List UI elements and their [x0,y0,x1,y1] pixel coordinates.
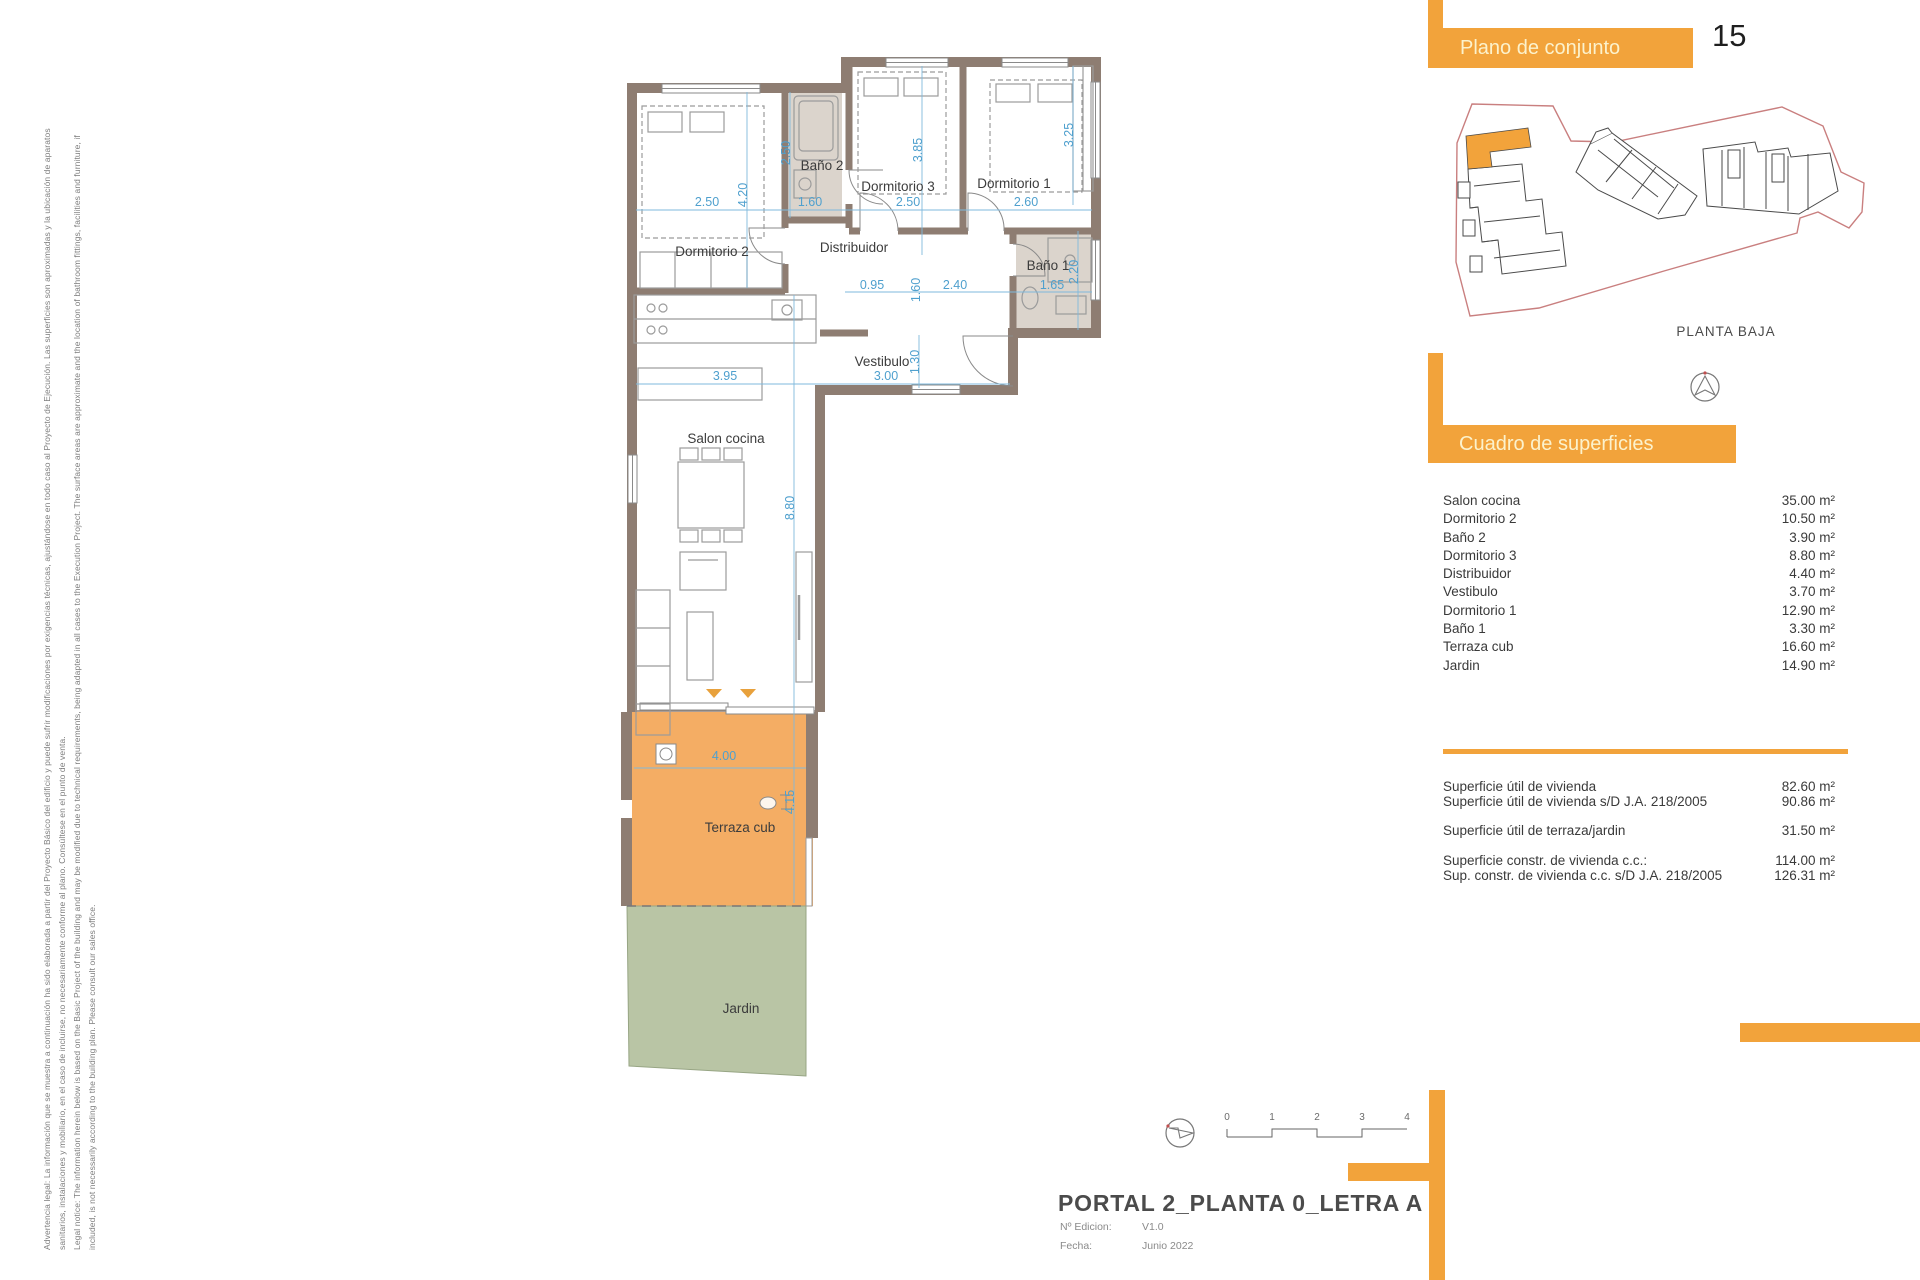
legal-line-4: included, is not necessarily according t… [87,904,97,1250]
date-label: Fecha: [1060,1240,1092,1252]
row-label: Jardin [1443,657,1480,675]
dim-terrace-h: 4.15 [783,790,797,814]
row-label: Distribuidor [1443,565,1511,583]
row-value: 14.90 m² [1782,657,1835,675]
row-value: 4.40 m² [1789,565,1835,583]
total-value: 126.31 m² [1774,869,1835,884]
scale-tick-1: 1 [1269,1112,1275,1123]
row-value: 3.70 m² [1789,583,1835,601]
table-row: Dormitorio 210.50 m² [1443,510,1835,528]
total-label: Superficie útil de vivienda [1443,780,1596,795]
row-value: 10.50 m² [1782,510,1835,528]
row-label: Dormitorio 1 [1443,602,1517,620]
total-label: Superficie útil de terraza/jardin [1443,824,1625,839]
label-dorm3: Dormitorio 3 [861,179,935,194]
total-label: Sup. constr. de vivienda c.c. s/D J.A. 2… [1443,869,1722,884]
dim-bath2-w: 1.60 [798,195,822,209]
scale-bar: 0 1 2 3 4 [1150,1100,1440,1160]
total-row: Superficie constr. de vivienda c.c.:114.… [1443,854,1835,869]
site-buildings-left [1458,164,1566,274]
dim-dorm2-w: 2.50 [695,195,719,209]
edition-label: Nº Edicion: [1060,1221,1112,1233]
scale-tick-3: 3 [1359,1112,1365,1123]
dim-vest-w: 3.00 [874,369,898,383]
dim-hall-a: 0.95 [860,278,884,292]
table-row: Salon cocina35.00 m² [1443,492,1835,510]
compass-icon [1166,1119,1194,1147]
legal-line-1: Advertencia legal: La información que se… [42,128,52,1250]
row-value: 3.30 m² [1789,620,1835,638]
row-label: Dormitorio 2 [1443,510,1517,528]
table-row: Baño 13.30 m² [1443,620,1835,638]
dim-hall-b: 2.40 [943,278,967,292]
label-salon: Salon cocina [687,431,765,446]
total-row: Sup. constr. de vivienda c.c. s/D J.A. 2… [1443,869,1835,884]
floor-plan: 2.50 4.20 2.50 1.60 3.85 2.50 3.25 2.60 … [560,30,1130,1105]
highlighted-unit [1466,128,1531,169]
total-value: 114.00 m² [1775,854,1835,869]
label-dorm2: Dormitorio 2 [675,244,749,259]
orange-bar-right [1740,1023,1920,1042]
table-row: Distribuidor4.40 m² [1443,565,1835,583]
total-row: Superficie útil de vivienda82.60 m² [1443,780,1835,795]
legal-line-3: Legal notice: The information herein bel… [72,135,82,1250]
label-distribuidor: Distribuidor [820,240,889,255]
table-row: Dormitorio 112.90 m² [1443,602,1835,620]
row-label: Salon cocina [1443,492,1520,510]
total-row: Superficie útil de vivienda s/D J.A. 218… [1443,795,1835,810]
table-row: Terraza cub16.60 m² [1443,638,1835,656]
dim-salon-h: 8.80 [783,496,797,520]
surfaces-totals: Superficie útil de vivienda82.60 m² Supe… [1443,780,1835,884]
dim-dorm1-w: 2.60 [1014,195,1038,209]
site-panel-title: Plano de conjunto [1460,37,1620,60]
terrace-wall-gap [621,800,632,818]
date-value: Junio 2022 [1142,1240,1193,1252]
garden-fill [627,906,806,1076]
row-value: 8.80 m² [1789,547,1835,565]
terrace-right-parapet [806,838,812,906]
total-row: Superficie útil de terraza/jardin31.50 m… [1443,824,1835,839]
terrace-drain-icon [656,744,676,764]
dim-dorm3-h: 3.85 [911,138,925,162]
label-garden: Jardin [723,1001,760,1016]
row-label: Vestibulo [1443,583,1498,601]
dim-bath2-h: 2.50 [779,141,793,165]
header-stub-top [1428,0,1443,30]
garden-area [627,906,806,1076]
dim-bath1-w: 1.65 [1040,278,1064,292]
row-label: Baño 1 [1443,620,1486,638]
scale-tick-0: 0 [1224,1112,1230,1123]
total-value: 90.86 m² [1782,795,1835,810]
dim-salon-w: 3.95 [713,369,737,383]
site-buildings-middle [1576,128,1697,219]
table-row: Vestibulo3.70 m² [1443,583,1835,601]
dim-hall-c: 1.60 [909,278,923,302]
totals-divider [1443,749,1848,754]
row-value: 35.00 m² [1782,492,1835,510]
page-title: PORTAL 2_PLANTA 0_LETRA A [1058,1190,1423,1217]
orange-tbar-vertical [1429,1090,1445,1280]
terrace-tap-icon [760,797,776,809]
row-value: 16.60 m² [1782,638,1835,656]
dim-dorm2-h: 4.20 [736,183,750,207]
total-label: Superficie útil de vivienda s/D J.A. 218… [1443,795,1707,810]
label-bath2: Baño 2 [801,158,844,173]
site-panel-header: Plano de conjunto [1428,28,1693,68]
label-vestibulo: Vestibulo [855,354,910,369]
table-row: Baño 23.90 m² [1443,529,1835,547]
scale-tick-2: 2 [1314,1112,1320,1123]
dim-dorm3-w: 2.50 [896,195,920,209]
planta-baja-label: PLANTA BAJA [1676,324,1775,339]
label-bath1: Baño 1 [1027,258,1070,273]
surfaces-table: Salon cocina35.00 m² Dormitorio 210.50 m… [1443,492,1835,675]
edition-value: V1.0 [1142,1221,1164,1233]
row-label: Terraza cub [1443,638,1514,656]
total-value: 82.60 m² [1782,780,1835,795]
site-buildings-right [1703,142,1838,214]
site-compass-icon [1691,371,1719,401]
dim-dorm1-h: 3.25 [1062,123,1076,147]
row-value: 3.90 m² [1789,529,1835,547]
row-value: 12.90 m² [1782,602,1835,620]
table-row: Dormitorio 38.80 m² [1443,547,1835,565]
dim-vest-h: 1.30 [908,350,922,374]
terrace-right-wall [806,712,818,838]
dim-terrace-w: 4.00 [712,749,736,763]
page-number: 15 [1712,18,1746,54]
total-value: 31.50 m² [1782,824,1835,839]
row-label: Baño 2 [1443,529,1486,547]
table-row: Jardin14.90 m² [1443,657,1835,675]
row-label: Dormitorio 3 [1443,547,1517,565]
orange-tbar-horizontal [1348,1163,1429,1181]
total-label: Superficie constr. de vivienda c.c.: [1443,854,1647,869]
header-stub-surfaces [1428,353,1443,463]
scale-line [1227,1129,1407,1137]
surfaces-panel-title: Cuadro de superficies [1459,433,1654,456]
label-terrace: Terraza cub [705,820,776,835]
surfaces-panel-header: Cuadro de superficies [1443,425,1736,463]
legal-line-2: sanitarios, instalaciones y mobiliario, … [57,736,67,1250]
scale-tick-4: 4 [1404,1112,1410,1123]
label-dorm1: Dormitorio 1 [977,176,1051,191]
site-plan: PLANTA BAJA [1440,85,1920,415]
